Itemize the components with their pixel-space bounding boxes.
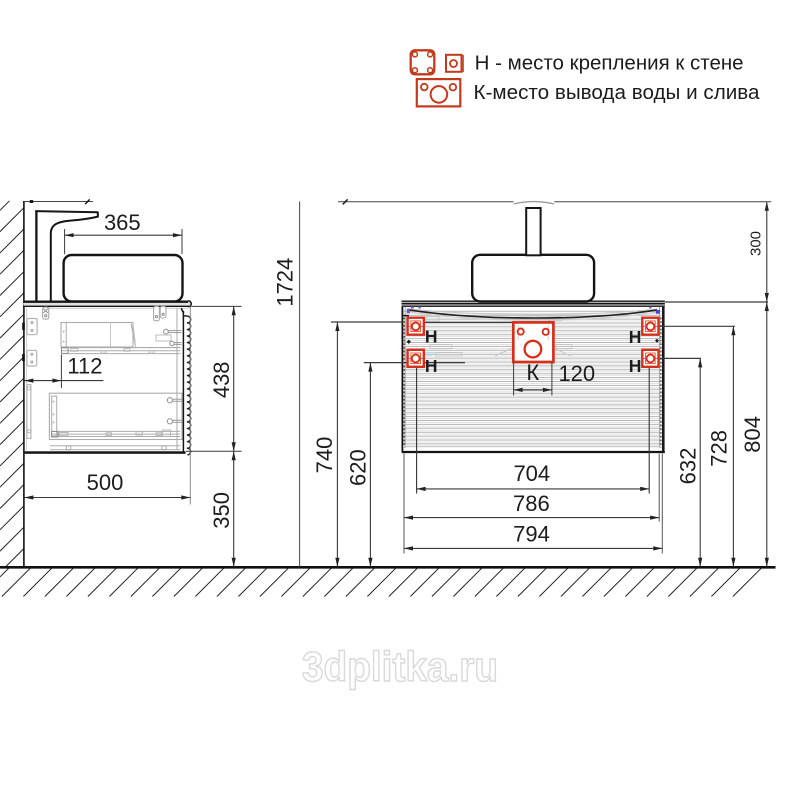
- svg-text:365: 365: [104, 210, 141, 235]
- svg-text:К-место вывода воды и слива: К-место вывода воды и слива: [474, 82, 761, 104]
- svg-text:К: К: [526, 360, 539, 385]
- svg-text:+: +: [52, 400, 55, 406]
- svg-text:740: 740: [312, 437, 337, 474]
- svg-text:120: 120: [558, 361, 595, 386]
- svg-text:438: 438: [209, 361, 234, 398]
- svg-text:Н - место крепления к стене: Н - место крепления к стене: [475, 53, 744, 75]
- svg-text:620: 620: [346, 449, 371, 486]
- svg-text:Н: Н: [425, 356, 438, 376]
- svg-text:350: 350: [209, 492, 234, 529]
- svg-text:704: 704: [513, 461, 550, 486]
- svg-text:728: 728: [707, 430, 732, 467]
- svg-text:786: 786: [513, 491, 550, 516]
- svg-text:632: 632: [675, 448, 700, 485]
- svg-text:+: +: [62, 330, 65, 336]
- svg-text:+: +: [52, 412, 55, 418]
- svg-text:300: 300: [747, 231, 764, 256]
- svg-text:Н: Н: [629, 327, 642, 347]
- svg-text:+: +: [52, 420, 55, 426]
- svg-text:500: 500: [87, 470, 124, 495]
- svg-text:804: 804: [740, 416, 765, 453]
- svg-text:+: +: [62, 340, 65, 346]
- svg-text:112: 112: [67, 353, 102, 378]
- svg-text:3dplitka.ru: 3dplitka.ru: [302, 643, 498, 690]
- svg-text:1724: 1724: [273, 258, 298, 307]
- svg-text:794: 794: [513, 521, 550, 546]
- svg-text:Н: Н: [629, 356, 642, 376]
- svg-text:Н: Н: [425, 326, 438, 346]
